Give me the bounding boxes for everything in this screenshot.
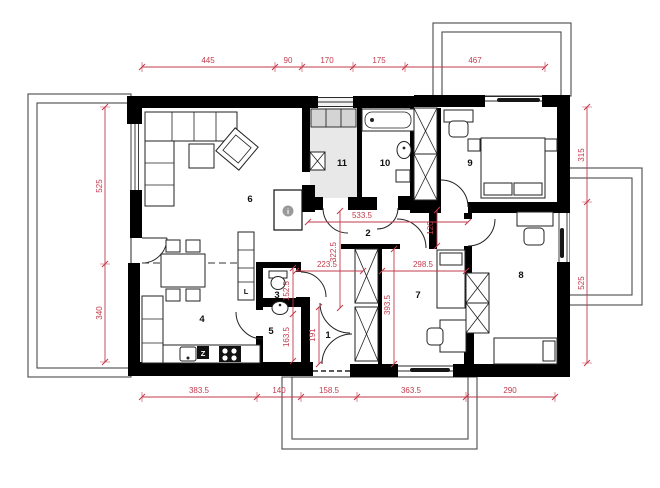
dim-label-383.5: 383.5 [189, 386, 210, 395]
wall-segment [128, 362, 313, 376]
fridge-label: L [244, 287, 249, 296]
wardrobe-icon [466, 303, 489, 333]
dim-label-340: 340 [95, 306, 104, 320]
room-label-10: 10 [380, 158, 391, 169]
floor-plan-drawing: i L Z 1 2 3 4 5 6 7 8 9 10 11 445 90 170… [0, 0, 660, 488]
nightstand [545, 139, 557, 151]
wall-segment [353, 96, 414, 108]
pillow [543, 341, 555, 361]
chair [186, 240, 200, 252]
dim-label-191: 191 [308, 328, 317, 342]
dim-label-298.5: 298.5 [413, 260, 434, 269]
dim-label-152.5: 152.5 [282, 280, 291, 301]
wall-segment [341, 244, 400, 249]
hall-cabinets [311, 109, 356, 127]
terrace-left-outer [28, 94, 131, 377]
pillow [440, 253, 462, 265]
floor-plan-page: i L Z 1 2 3 4 5 6 7 8 9 10 11 445 90 170… [0, 0, 660, 488]
room-label-1: 1 [325, 330, 331, 341]
terrace-left-inner [37, 103, 131, 368]
roller-shutter-icon [497, 98, 540, 102]
room-label-9: 9 [467, 158, 472, 169]
wall-segment [557, 95, 570, 203]
chair [186, 289, 200, 301]
wall-segment [437, 108, 441, 202]
door-arc-room11 [323, 208, 348, 233]
single-bed-room7 [437, 250, 465, 308]
desk-room9 [444, 110, 473, 137]
room-label-2: 2 [365, 228, 370, 239]
desk-room8 [517, 212, 553, 245]
dim-label-223.5: 223.5 [317, 260, 338, 269]
washing-machine-icon [310, 152, 325, 170]
door-arc-room8 [468, 219, 495, 246]
window-room9-top [485, 96, 542, 106]
terrace-topright-inner [442, 32, 561, 96]
wall-segment [130, 190, 142, 238]
window-room8-right [558, 213, 569, 262]
dim-label-175: 175 [372, 56, 386, 65]
toilet-icon [396, 170, 410, 182]
door-arc-room9 [441, 180, 468, 207]
desk-room7 [427, 320, 466, 352]
door-arc-room5 [236, 312, 263, 339]
dim-label-525-left: 525 [95, 179, 104, 193]
dim-label-120: 120 [426, 221, 435, 235]
dim-label-393.5: 393.5 [383, 294, 392, 315]
dim-label-315: 315 [577, 148, 586, 162]
dim-label-322.5: 322.5 [329, 241, 338, 262]
terrace-topright-outer [433, 23, 571, 96]
chair [166, 240, 180, 252]
window-living-left [130, 124, 140, 190]
dim-label-158.5: 158.5 [319, 386, 340, 395]
door-arc-room1 [320, 303, 350, 333]
room-label-6: 6 [247, 194, 252, 205]
room-label-7: 7 [415, 290, 420, 301]
dim-label-170: 170 [320, 56, 334, 65]
wall-segment [350, 364, 398, 377]
dim-label-533.5: 533.5 [352, 211, 373, 220]
sink-icon [180, 347, 196, 361]
door-arc-room7 [397, 219, 426, 248]
dim-label-363.5: 363.5 [401, 386, 422, 395]
wall-segment [468, 202, 570, 213]
door-arc-room10 [377, 208, 398, 229]
desk-chair [449, 121, 468, 137]
wardrobe-icon [466, 273, 489, 303]
wardrobe-icon [414, 154, 437, 200]
wardrobe-icon [414, 108, 437, 154]
wall-segment [302, 185, 315, 212]
wardrobe-icon [355, 249, 378, 303]
dim-label-140: 140 [272, 386, 286, 395]
wardrobe-icon [355, 307, 378, 361]
stove-label: Z [201, 349, 206, 358]
pillow [484, 183, 512, 195]
dining-table [161, 254, 205, 287]
wall-segment [302, 108, 310, 172]
wall-segment [357, 108, 362, 198]
window-room7-bottom [398, 365, 453, 376]
pillow [514, 183, 542, 195]
single-bed-room8 [494, 338, 557, 364]
wall-segment [414, 95, 485, 107]
dim-label-467: 467 [468, 56, 482, 65]
wall-segment [464, 213, 472, 219]
wall-segment [128, 263, 140, 372]
wall-segment [378, 249, 382, 364]
dim-label-525-right: 525 [577, 276, 586, 290]
wall-segment [453, 364, 570, 377]
desk-chair [524, 228, 544, 245]
wall-segment [127, 96, 142, 124]
entrance-porch-outer [282, 377, 477, 449]
dim-label-445: 445 [201, 56, 215, 65]
window-hall11-top [318, 97, 353, 107]
dim-label-90: 90 [284, 56, 293, 65]
dim-label-290: 290 [503, 386, 517, 395]
washbasin-icon [397, 142, 411, 159]
room-label-11: 11 [337, 158, 348, 169]
cooktop-icon [219, 346, 241, 362]
room-label-3: 3 [274, 290, 279, 301]
room-label-4: 4 [199, 314, 205, 325]
wall-segment [557, 262, 570, 377]
washbasin-icon [272, 302, 288, 315]
room-label-5: 5 [268, 326, 274, 337]
double-bed [481, 138, 545, 198]
nightstand [468, 139, 480, 151]
dining-set [161, 240, 205, 301]
kitchen-counter [142, 232, 260, 363]
bathtub [362, 109, 414, 131]
desk-chair [427, 328, 443, 345]
room-label-8: 8 [518, 270, 523, 281]
roller-shutter-icon [560, 228, 564, 258]
wall-segment [127, 96, 318, 108]
door-arc-room3 [301, 272, 326, 297]
coffee-table [189, 144, 214, 168]
wall-segment [348, 197, 377, 210]
roller-shutter-icon [410, 368, 450, 372]
dim-label-163.5: 163.5 [282, 326, 291, 347]
chair [166, 289, 180, 301]
info-glyph: i [287, 207, 289, 216]
tech-box: i [274, 190, 302, 230]
